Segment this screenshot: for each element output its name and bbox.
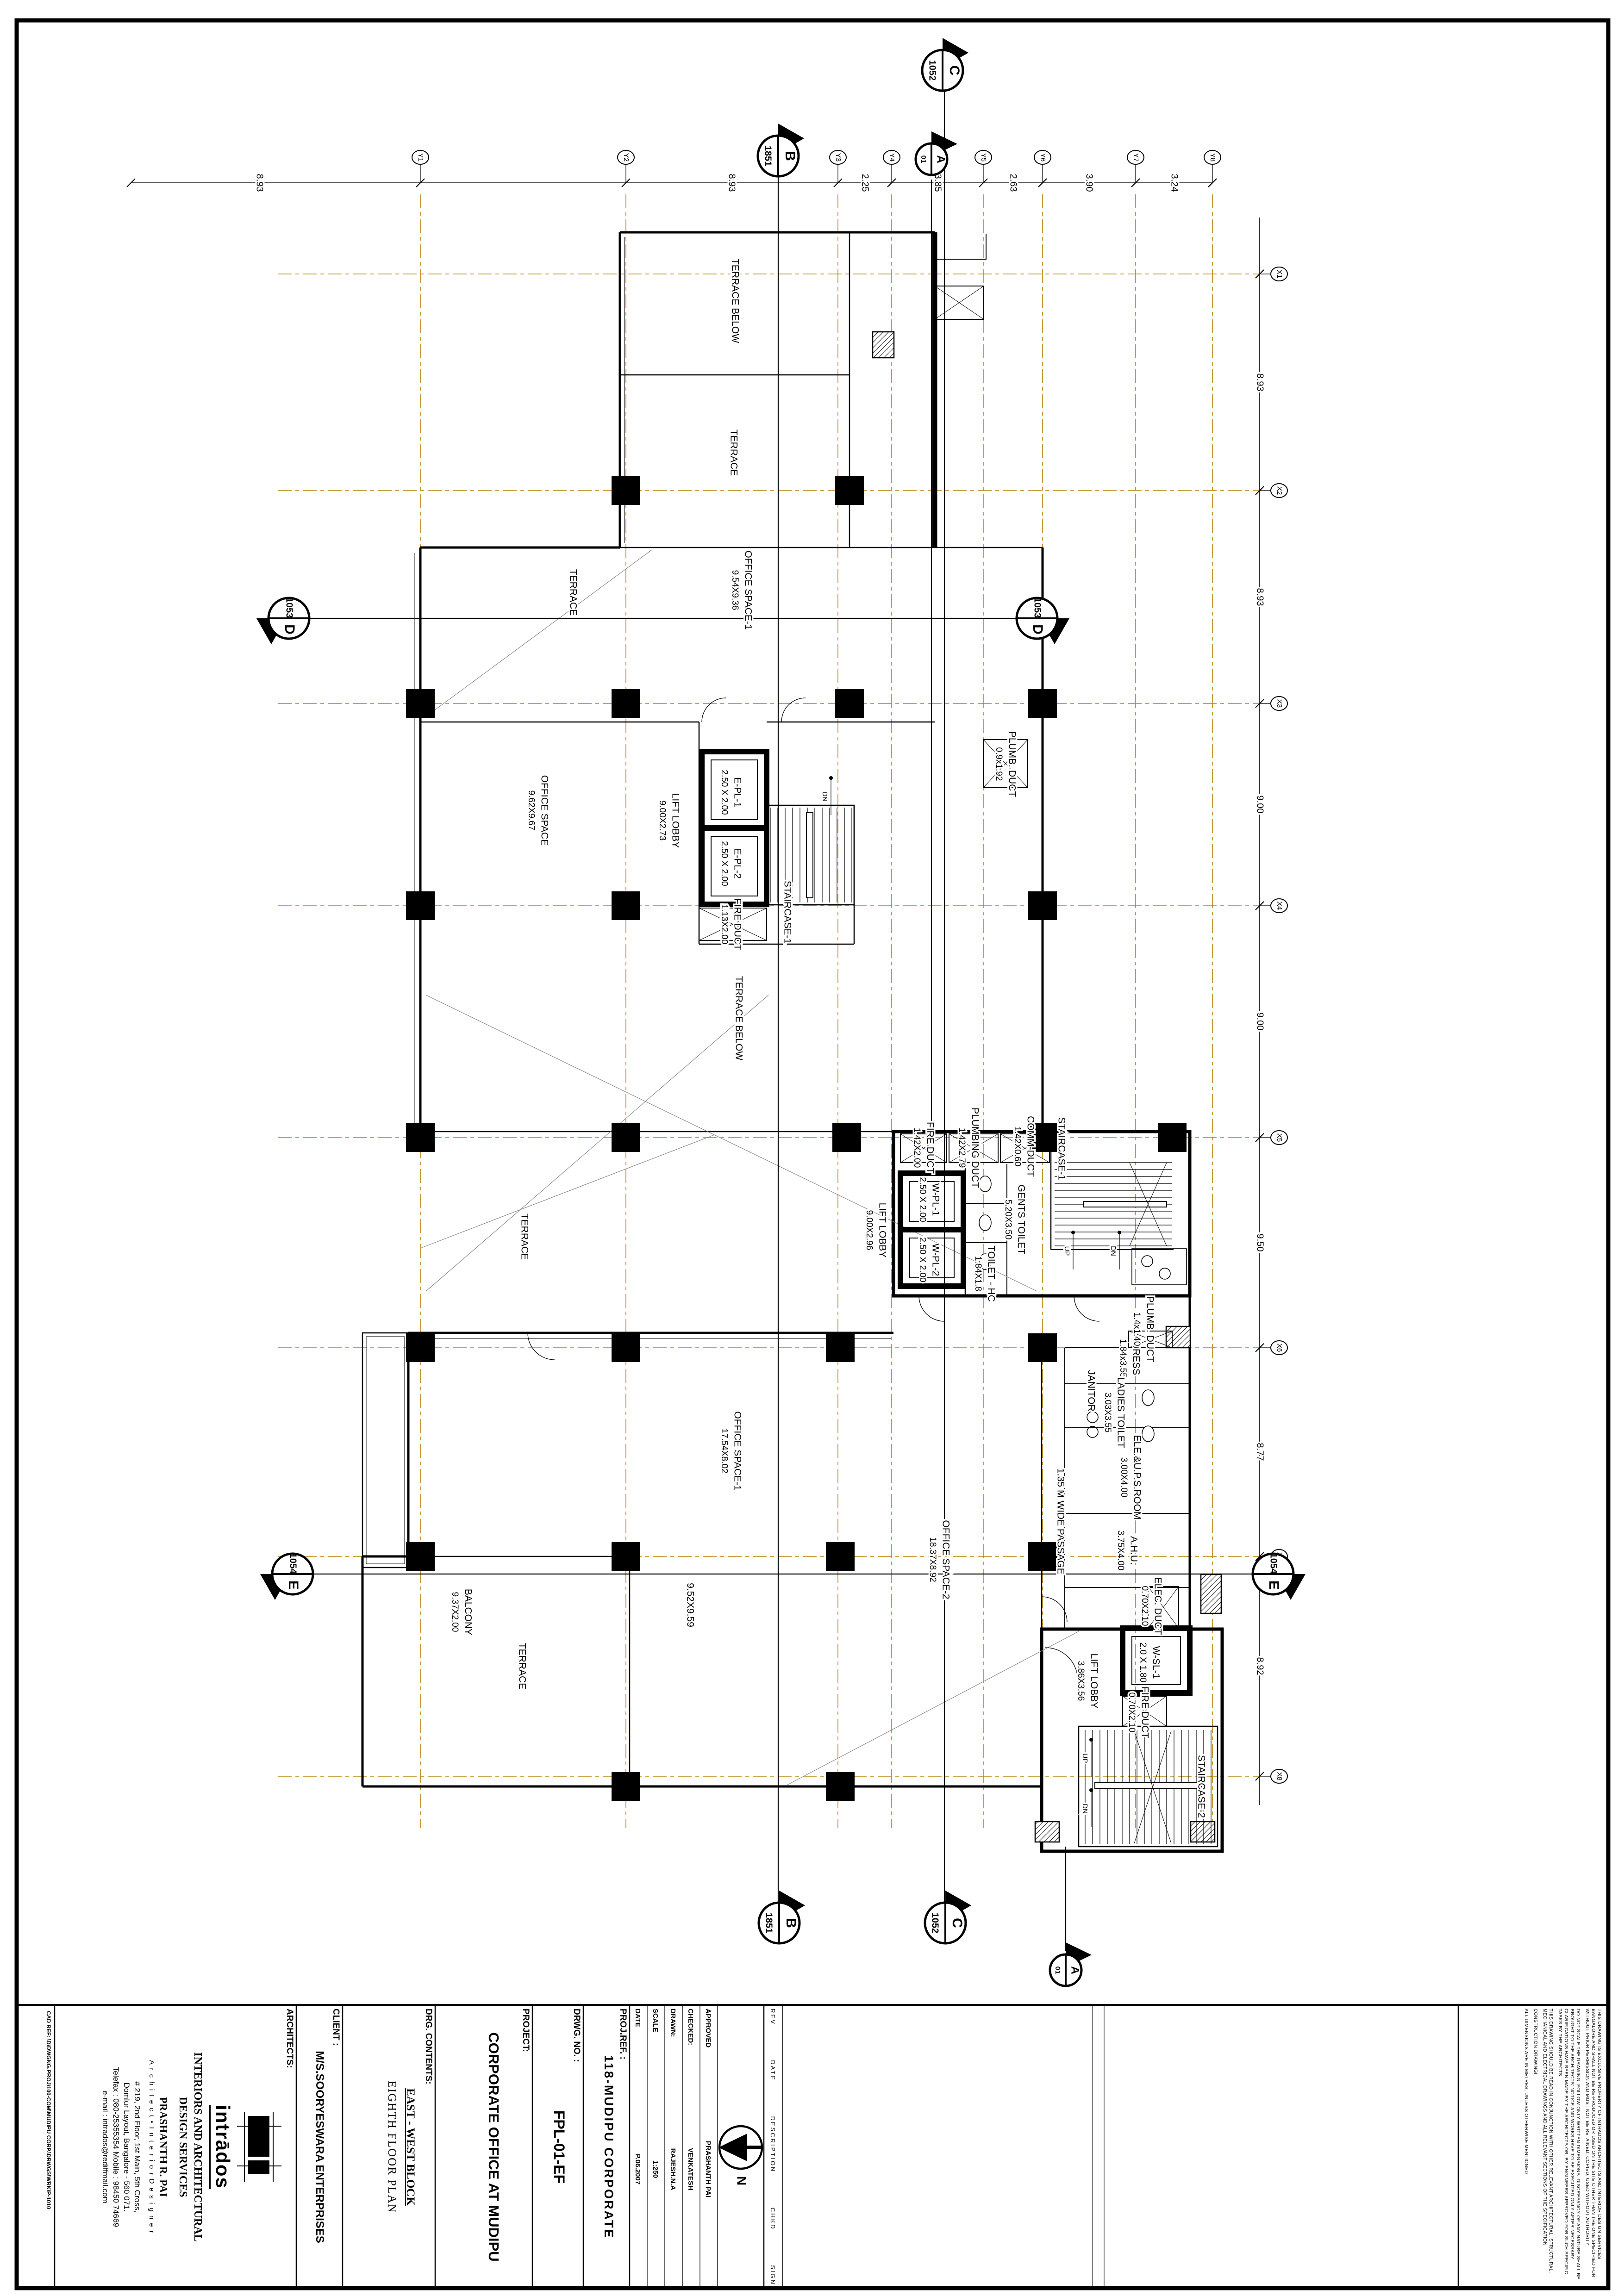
proj-ref-box: PROJ.REF. : 118-MUDIPU CORPORATE [585,2009,628,2285]
approved-label: APPROVED [705,2009,712,2053]
scale-label: SCALE [652,2009,660,2053]
section-marker-num-1053: 1053 [1032,597,1043,618]
section-marker-num-1052: 1052 [927,60,937,81]
room-dims: 1.84x3.55 [1118,1339,1128,1377]
cad-ref: CAD REF: \D\DWGNG.PROJ\100-COM\MUDIPU CO… [19,2011,52,2285]
room-label: E-PL-1 [732,777,743,807]
grid-bubble-Y6: Y6 [1039,153,1047,162]
room-dims: 1.13X2.00 [719,904,729,945]
client-box: CLIENT : M/S.SOORYESWARA ENTERPRISES [298,2009,341,2285]
grid-bubble-Y5: Y5 [980,153,987,162]
grid-bubble-Y8: Y8 [1209,153,1217,162]
checked-label: CHECKED: [687,2009,695,2053]
room-label: TERRACE [728,429,739,476]
room-label: TOILET - HC [986,1245,996,1302]
room-label: OFFICE SPACE-1 [743,550,753,629]
firm-principal-title: A r c h i t e c t • I n t e r i o r D e … [147,2009,156,2285]
room-dims: 9.00X2.96 [864,1210,874,1251]
room-label: ELE.&U.P.S.ROOM [1131,1435,1142,1520]
room-dims: 2.50 X 2.00 [918,1237,927,1282]
rev-header: REV [770,2009,777,2025]
dim-top: 3.85 [933,174,943,192]
project-name: CORPORATE OFFICE AT MUDIPU [485,2009,502,2285]
room-label: TERRACE [519,1213,530,1260]
dim-top: 3.24 [1169,174,1180,192]
flow-label-UP: UP [1081,1754,1089,1763]
room-dims: 1.42X0.60 [1012,1126,1022,1167]
drg-contents-label: DRG. CONTENTS: [423,2009,433,2285]
room-dims: 9.62X9.67 [526,790,536,831]
room-dims: 18.37X8.92 [928,1537,937,1582]
dim-top: 8.93 [727,174,737,192]
room-label: LIFT LOBBY [877,1203,887,1258]
project-box: PROJECT: CORPORATE OFFICE AT MUDIPU [437,2009,531,2285]
rev-date-header: DATE [770,2060,777,2081]
room-label: PLUMBING DUCT [969,1108,980,1188]
grid-bubble-Y2: Y2 [622,153,630,162]
room-label: TERRACE BELOW [733,976,744,1060]
scale-strip: SCALE 1:250 [647,2009,664,2285]
scale-value: 1:250 [652,2053,660,2285]
grid-bubble-X3: X3 [1275,699,1283,708]
drawing-sheet: Y1Y2Y3Y4Y5Y6Y7Y8X1X2X3X4X5X6X7X88.938.93… [0,0,1624,2296]
grid-bubble-X5: X5 [1275,1133,1283,1142]
section-marker-num-1054: 1054 [1268,1553,1279,1574]
room-dims: 2.50 X 2.00 [918,1177,927,1222]
room-label: FIRE DUCT [924,1122,935,1174]
firm-addr4: e-mail : intrados@rediffmail.com [100,2009,110,2285]
rev-sign-header: SIGN [770,2265,777,2285]
grid-lines [278,194,1260,1828]
proj-ref-value: 118-MUDIPU CORPORATE [601,2009,616,2285]
flow-label-DN: DN [1109,1246,1117,1256]
section-marker-D: D [282,624,297,635]
architects-box: ARCHITECTS: intrādos INTERIORS AND ARCHI… [56,2009,294,2285]
section-marker-E: E [1266,1580,1281,1590]
room-dims: 9.37X2.00 [450,1592,460,1632]
checked-value: VENKATESH [687,2053,695,2285]
north-arrow-label: N [735,2176,749,2185]
room-label: OFFICE SPACE-1 [732,1411,743,1490]
section-marker-E: E [286,1580,301,1590]
grid-bubble-X8: X8 [1275,1772,1283,1780]
room-dims: 2.50 X 2.00 [719,770,729,815]
room-dims: 3.00X4.00 [1119,1457,1129,1498]
drg-contents-block: EAST - WEST BLOCK [404,2009,417,2285]
room-label: W-PL-2 [930,1244,941,1276]
room-label: STAIRCASE-1 [1056,1117,1067,1180]
section-marker-num-1851: 1851 [764,1913,774,1934]
room-label: 9.52X9.59 [685,1583,695,1627]
section-marker-num-01: 01 [1054,1966,1062,1974]
room-label: TERRACE [568,569,578,616]
section-marker-C: C [947,65,962,75]
room-dims: 1.42X2.00 [912,1128,922,1168]
room-dims: 3.03X3.55 [1103,1393,1112,1433]
drg-no-label: DRWG. NO. : [571,2009,581,2285]
date-value: P.06.2007 [634,2053,642,2285]
dim-top: 2.63 [1008,174,1018,192]
proj-ref-label: PROJ.REF. : [618,2009,628,2285]
room-label: LIFT LOBBY [1088,1654,1099,1709]
firm-addr3: Telefax : 080-25355354 Mobile : 98450 74… [110,2009,121,2285]
note-2: DO NOT SCALE THE DRAWING, FOLLOW ONLY WR… [1557,2009,1581,2285]
room-dims: 3.86X3.56 [1076,1661,1086,1701]
room-label: PLUMB. DUCT [1006,731,1017,797]
approved-strip: APPROVED PRASHANTH PAI [700,2009,717,2285]
room-label: JANITOR [1086,1370,1096,1411]
drg-contents-floor: EIGHTH FLOOR PLAN [385,2009,398,2285]
room-label: TERRACE [517,1643,527,1689]
room-dims: 2.50 X 2.00 [719,841,729,886]
room-label: TERRACE BELOW [730,259,740,343]
drawn-value: RAJESH.N.A [669,2053,677,2285]
drg-no-value: FPL-01-EF [550,2009,568,2285]
rev-description-header: DESCRIPTION [770,2116,777,2172]
section-marker-A: A [1069,1966,1081,1974]
room-label: LIFT LOBBY [670,793,681,848]
section-marker-A: A [935,155,947,163]
drawn-strip: DRAWN: RAJESH.N.A [665,2009,681,2285]
section-marker-C: C [949,1918,965,1928]
note-5: ALL DIMENSIONS ARE IN METRES, UNLESS OTH… [1523,2009,1529,2285]
room-label: BALCONY [462,1589,473,1635]
date-label: DATE [634,2009,642,2053]
grid-bubble-Y7: Y7 [1132,153,1140,162]
room-dims: 1.42X2.79 [957,1128,967,1168]
grid-bubble-X2: X2 [1275,486,1283,495]
section-marker-num-01: 01 [919,156,927,163]
approved-value: PRASHANTH PAI [705,2053,712,2285]
general-notes: THIS DRAWING IS EXCLUSIVE PROPERTY OF IN… [1461,2009,1605,2285]
revision-table-headers: REV DATE DESCRIPTION CHKD SIGN [765,2009,781,2285]
note-4: CONSTRUCTION DRAWING! [1532,2009,1538,2285]
intrados-logo-icon [237,2112,281,2182]
room-dims: 2.0 X 1.80 [1138,1643,1148,1683]
room-label: STAIRCASE-1 [782,881,793,944]
room-label: STAIRCASE-2 [1196,1755,1206,1818]
room-label: PLUMB. DUCT [1144,1296,1155,1363]
room-label: E-PL-2 [732,848,743,878]
grid-bubble-X6: X6 [1275,1344,1283,1352]
drg-contents-box: DRG. CONTENTS: EAST - WEST BLOCK EIGHTH … [344,2009,433,2285]
firm-addr2: Domlur Layout, Bangalore - 560 071. [121,2009,131,2285]
grid-bubble-Y4: Y4 [888,153,896,162]
room-dims: 17.54X8.02 [719,1428,729,1473]
drawn-label: DRAWN: [669,2009,677,2053]
room-label: COMM-DUCT [1025,1116,1036,1177]
room-dims: 3.75X4.00 [1116,1531,1125,1571]
checked-strip: CHECKED: VENKATESH [682,2009,699,2285]
flow-label-UP: UP [1063,1246,1071,1256]
firm-line1: INTERIORS AND ARCHITECTURAL [190,2009,205,2285]
flow-label-DN: DN [1081,1804,1089,1814]
room-label: FIRE DUCT [732,898,743,950]
section-marker-D: D [1030,624,1045,635]
dim-right: 8.77 [1255,1443,1265,1461]
room-dims: 0.70X2.10 [1140,1586,1149,1626]
room-label: ELEC. DUCT [1152,1577,1163,1635]
flow-label-DN: DN [821,791,829,802]
room-dims: 0.9x1.92 [994,747,1004,781]
firm-name: intrādos [209,2105,234,2189]
drg-no-box: DRWG. NO. : FPL-01-EF [534,2009,581,2285]
room-labels: TERRACE BELOWTERRACETERRACEOFFICE SPACE-… [450,259,1206,1827]
room-dims: 1.84X1.8 [973,1256,983,1291]
note-3: THIS DRAWING SHOULD BE READ IN CONJUNCTI… [1542,2009,1554,2285]
room-label: OFFICE SPACE-2 [940,1520,951,1599]
room-dims: 9.54X9.36 [730,570,740,610]
room-dims: 9.00X2.73 [657,801,667,841]
grid-bubble-Y3: Y3 [834,153,842,162]
room-label: LADIES TOILET [1115,1377,1126,1448]
section-marker-num-1052: 1052 [930,1913,940,1934]
grid-bubble-X4: X4 [1275,902,1283,910]
room-dims: 0.70X2.10 [1127,1692,1137,1733]
note-1: THIS DRAWING IS EXCLUSIVE PROPERTY OF IN… [1584,2009,1602,2285]
firm-line2: DESIGN SERVICES [175,2009,190,2285]
room-dims: 1.4x1.40 [1132,1313,1142,1346]
room-label: 1.35 M WIDE PASSAGE [1055,1468,1066,1574]
firm-addr1: # 219, 2nd Floor, 1st Main, 5th Cross, [131,2009,142,2285]
room-dims: 5.20X3.50 [1003,1200,1013,1240]
dim-right: 8.92 [1255,1657,1265,1675]
cad-ref-text: CAD REF: \D\DWGNG.PROJ\100-COM\MUDIPU CO… [45,2011,52,2209]
section-marker-num-1851: 1851 [763,146,773,167]
room-label: DRESS [1131,1342,1141,1375]
room-label: W-PL-1 [930,1183,941,1216]
project-label: PROJECT: [520,2009,531,2285]
dim-top: 3.90 [1084,174,1094,192]
architects-label: ARCHITECTS: [284,2009,294,2285]
room-label: FIRE DUCT [1139,1686,1150,1738]
dim-right: 9.50 [1255,1234,1265,1252]
walls [362,232,1222,1851]
section-marker-num-1053: 1053 [284,597,294,618]
dim-right: 8.93 [1255,373,1265,392]
room-label: A.H.U. [1128,1536,1139,1565]
section-marker-B: B [783,1918,799,1928]
client-name: M/S.SOORYESWARA ENTERPRISES [313,2009,326,2285]
room-label: OFFICE SPACE [539,775,550,846]
firm-principal: PRASHANTH R. PAI [156,2009,170,2285]
client-label: CLIENT : [331,2009,341,2285]
dim-top: 2.25 [860,174,870,192]
section-marker-num-1054: 1054 [288,1553,298,1574]
dim-right: 9.00 [1255,796,1265,814]
date-strip: DATE P.06.2007 [630,2009,646,2285]
rev-chkd-header: CHKD [770,2208,777,2230]
grid-bubble-X1: X1 [1275,270,1283,278]
grid-bubble-Y1: Y1 [417,153,425,162]
section-marker-B: B [782,151,798,161]
dim-top: 8.93 [255,174,265,192]
room-label: GENTS TOILET [1016,1185,1026,1255]
floor-plan-canvas: Y1Y2Y3Y4Y5Y6Y7Y8X1X2X3X4X5X6X7X88.938.93… [0,0,1624,2296]
dim-right: 8.93 [1255,588,1265,606]
room-label: W-SL-1 [1150,1646,1161,1679]
title-block-linework: N [17,20,1608,2288]
dim-right: 9.00 [1255,1013,1265,1031]
